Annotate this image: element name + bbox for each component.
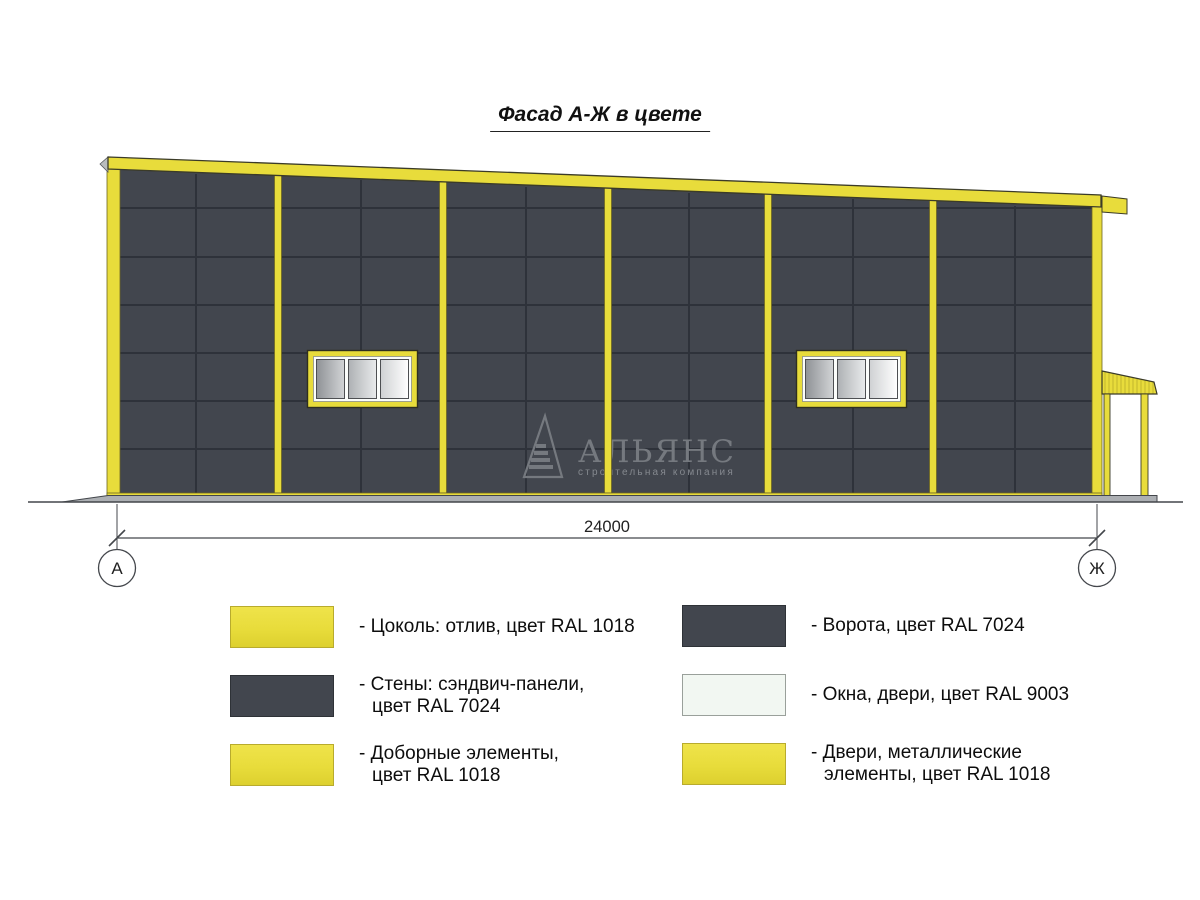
canopy-post-right bbox=[1141, 394, 1148, 498]
watermark-name: АЛЬЯНС bbox=[578, 434, 736, 470]
dimension-label: 24000 bbox=[584, 518, 630, 536]
legend-item-metal-doors: - Двери, металлические элементы, цвет RA… bbox=[682, 743, 1069, 785]
watermark-subtitle: строительная компания bbox=[578, 467, 735, 478]
legend-swatch-ral7024 bbox=[230, 675, 334, 717]
canopy-post-left bbox=[1104, 394, 1110, 498]
window-2 bbox=[797, 351, 907, 408]
legend-label: - Цоколь: отлив, цвет RAL 1018 bbox=[359, 616, 635, 638]
axis-marker-zh: Ж bbox=[1079, 550, 1116, 587]
window-1 bbox=[308, 351, 418, 408]
legend-swatch-ral1018 bbox=[230, 606, 334, 648]
legend-swatch-ral1018 bbox=[682, 743, 786, 785]
canopy bbox=[1102, 371, 1157, 498]
page-title: Фасад А-Ж в цвете bbox=[490, 103, 710, 132]
axis-letter-zh: Ж bbox=[1089, 559, 1105, 578]
legend-item-windows-doors: - Окна, двери, цвет RAL 9003 bbox=[682, 674, 1069, 716]
roof-fascia-end-piece bbox=[1102, 196, 1127, 214]
legend-label: - Двери, металлические элементы, цвет RA… bbox=[811, 742, 1050, 786]
legend-column-left: - Цоколь: отлив, цвет RAL 1018 - Стены: … bbox=[230, 606, 635, 813]
legend-column-right: - Ворота, цвет RAL 7024 - Окна, двери, ц… bbox=[682, 605, 1069, 812]
canopy-roof bbox=[1102, 371, 1157, 394]
legend-item-trim-elements: - Доборные элементы, цвет RAL 1018 bbox=[230, 744, 635, 786]
building-facade: АЛЬЯНС строительная компания bbox=[100, 157, 1157, 499]
legend-item-plinth: - Цоколь: отлив, цвет RAL 1018 bbox=[230, 606, 635, 648]
legend-label: - Стены: сэндвич-панели, цвет RAL 7024 bbox=[359, 674, 584, 718]
legend-label: - Доборные элементы, цвет RAL 1018 bbox=[359, 743, 559, 787]
axis-letter-a: А bbox=[111, 559, 123, 578]
legend-swatch-ral9003 bbox=[682, 674, 786, 716]
blind-area bbox=[62, 496, 1157, 503]
facade-drawing-sheet: АЛЬЯНС строительная компания bbox=[0, 0, 1200, 900]
ground bbox=[28, 496, 1183, 503]
legend-swatch-ral7024 bbox=[682, 605, 786, 647]
legend-item-walls: - Стены: сэндвич-панели, цвет RAL 7024 bbox=[230, 675, 635, 717]
axis-marker-a: А bbox=[99, 550, 136, 587]
roof-left-edge bbox=[100, 157, 108, 172]
legend-swatch-ral1018 bbox=[230, 744, 334, 786]
legend-item-gates: - Ворота, цвет RAL 7024 bbox=[682, 605, 1069, 647]
legend-label: - Окна, двери, цвет RAL 9003 bbox=[811, 684, 1069, 706]
legend-label: - Ворота, цвет RAL 7024 bbox=[811, 615, 1025, 637]
